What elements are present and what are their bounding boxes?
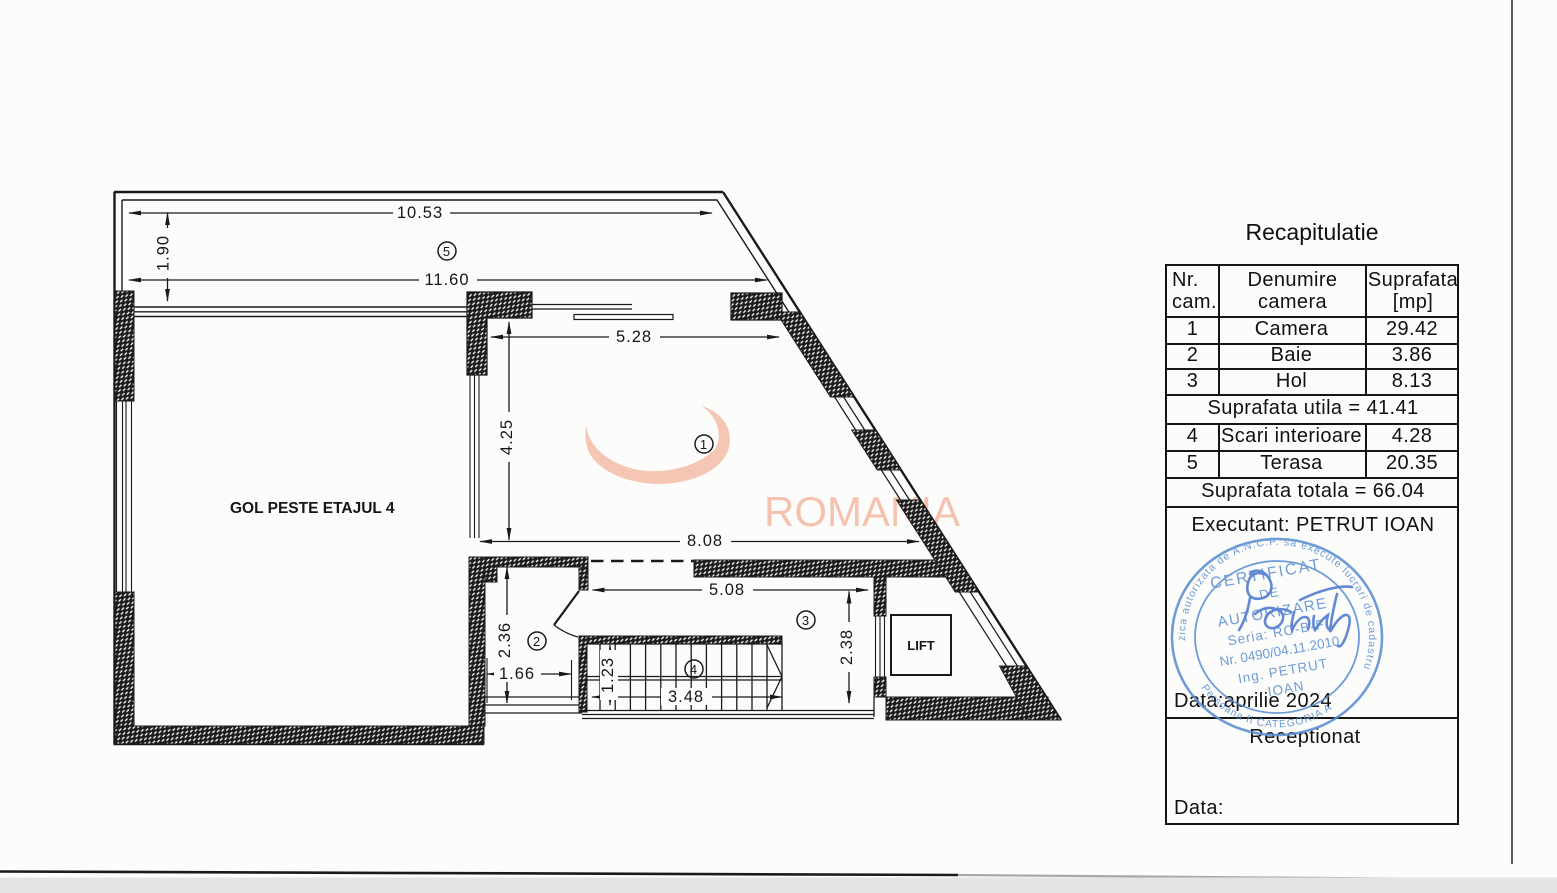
svg-text:zica autorizata de A.N.C.P. sa: zica autorizata de A.N.C.P. sa execute l… [0, 0, 1378, 672]
svg-text:IOAN: IOAN [1267, 678, 1306, 699]
